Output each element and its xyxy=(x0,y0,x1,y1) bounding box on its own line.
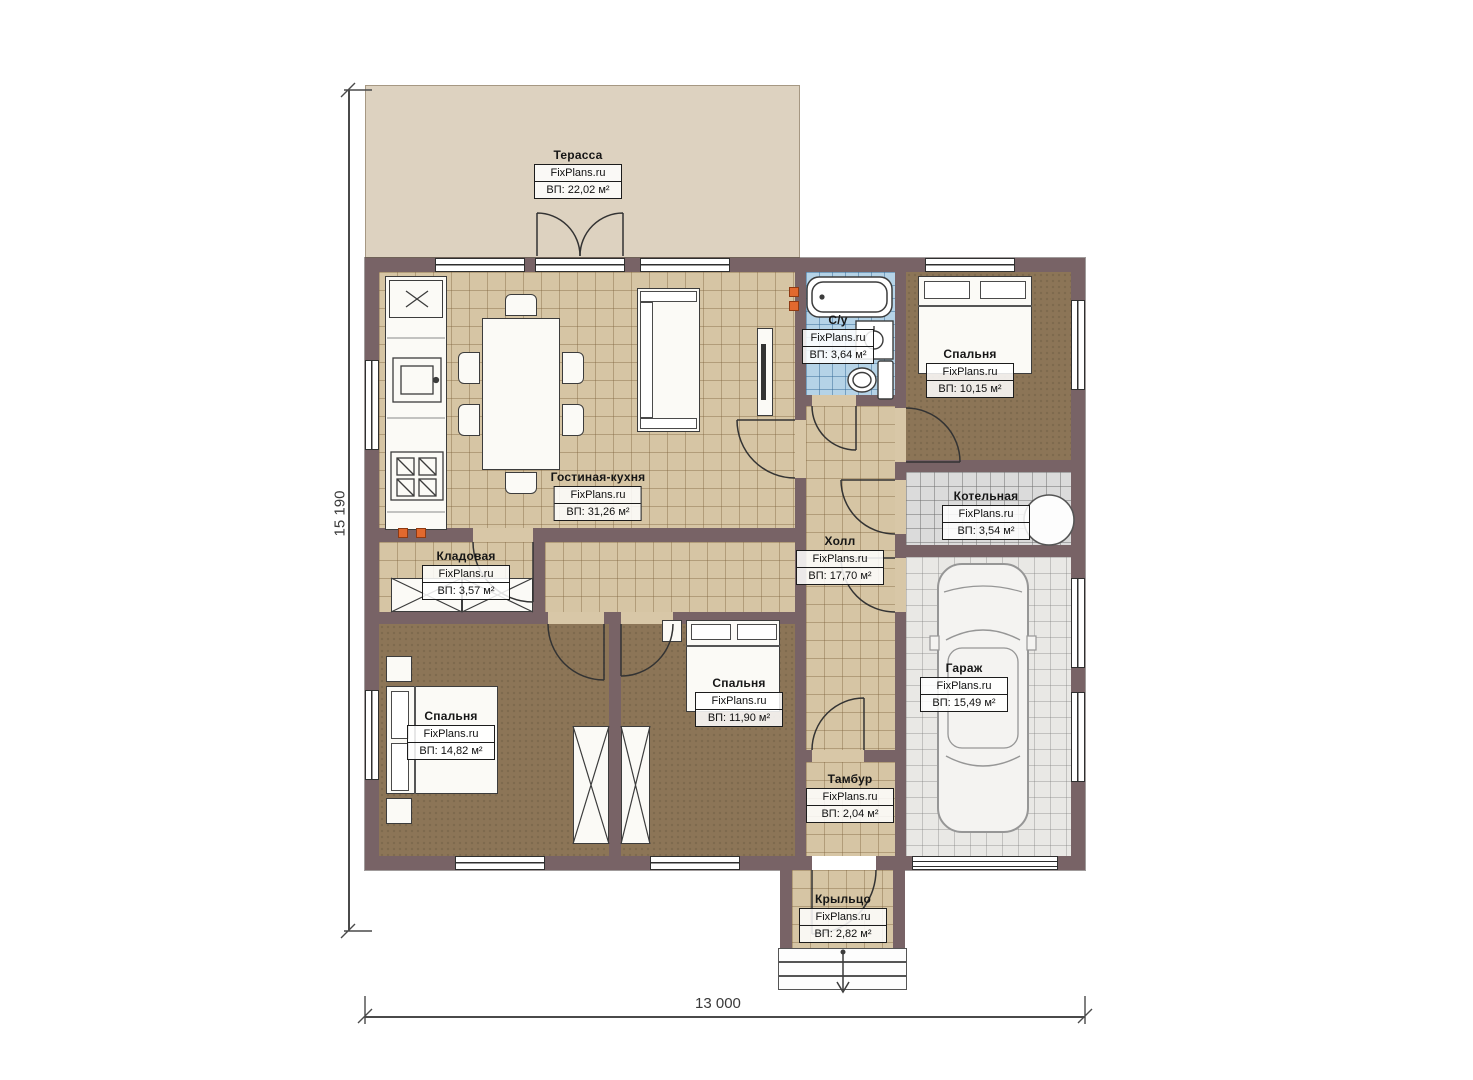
door-gap-boiler xyxy=(895,480,906,534)
vent-shaft xyxy=(398,528,408,538)
dimension-width-label: 13 000 xyxy=(695,995,741,1012)
room-label-storage: Кладовая FixPlans.ruВП: 3,57 м² xyxy=(422,549,510,600)
door-gap-garage xyxy=(895,558,906,612)
dimension-line-bottom xyxy=(365,1016,1085,1018)
room-label-vestibule: Тамбур FixPlans.ruВП: 2,04 м² xyxy=(806,772,894,823)
window-left-living xyxy=(365,360,379,450)
wardrobe xyxy=(621,726,650,844)
window-right-garage-2 xyxy=(1071,692,1085,782)
sofa-back xyxy=(640,302,653,418)
watermark: FixPlans.ru xyxy=(943,506,1029,522)
room-name: Холл xyxy=(796,534,884,548)
room-area: ВП: 2,04 м² xyxy=(807,805,893,822)
hall-band-floor xyxy=(545,542,795,612)
window-right-garage-1 xyxy=(1071,578,1085,668)
nightstand xyxy=(662,620,682,642)
room-label-bathroom: С/у FixPlans.ruВП: 3,64 м² xyxy=(802,313,874,364)
window-top-kitchen xyxy=(435,258,525,272)
room-area: ВП: 22,02 м² xyxy=(535,181,621,198)
dining-table xyxy=(482,318,560,470)
chair xyxy=(505,472,537,494)
pillow xyxy=(924,281,970,299)
room-name: Спальня xyxy=(926,347,1014,361)
vent-shaft xyxy=(789,301,799,311)
room-area: ВП: 14,82 м² xyxy=(408,742,494,759)
door-gap-storage xyxy=(473,528,533,542)
room-area: ВП: 2,82 м² xyxy=(800,925,886,942)
watermark: FixPlans.ru xyxy=(807,789,893,805)
chair xyxy=(458,404,480,436)
porch-step xyxy=(778,962,907,976)
window-top-living xyxy=(640,258,730,272)
room-name: Терасса xyxy=(534,148,622,162)
room-name: Спальня xyxy=(407,709,495,723)
room-area: ВП: 15,49 м² xyxy=(921,694,1007,711)
room-name: Гараж xyxy=(920,661,1008,675)
window-bottom-bedroom-middle xyxy=(650,856,740,870)
dimension-height-label: 15 190 xyxy=(332,484,349,544)
terrace-door xyxy=(535,258,625,272)
room-name: Котельная xyxy=(942,489,1030,503)
room-label-boiler-room: Котельная FixPlans.ruВП: 3,54 м² xyxy=(942,489,1030,540)
room-area: ВП: 10,15 м² xyxy=(927,380,1013,397)
pillow xyxy=(691,624,731,640)
room-area: ВП: 11,90 м² xyxy=(696,709,782,726)
door-gap-bathroom xyxy=(812,395,856,406)
tv xyxy=(761,344,766,400)
pillow xyxy=(980,281,1026,299)
door-gap-bedroom-bl xyxy=(548,612,604,624)
window-top-bedroom xyxy=(925,258,1015,272)
watermark: FixPlans.ru xyxy=(535,165,621,181)
room-area: ВП: 17,70 м² xyxy=(797,567,883,584)
room-name: Спальня xyxy=(695,676,783,690)
room-area: ВП: 3,54 м² xyxy=(943,522,1029,539)
watermark: FixPlans.ru xyxy=(408,726,494,742)
porch-wall-right xyxy=(893,870,905,950)
watermark: FixPlans.ru xyxy=(927,364,1013,380)
room-name: Гостиная-кухня xyxy=(551,470,646,484)
watermark: FixPlans.ru xyxy=(696,693,782,709)
room-area: ВП: 3,64 м² xyxy=(803,346,873,363)
room-name: С/у xyxy=(802,313,874,327)
room-label-bedroom-top-right: Спальня FixPlans.ruВП: 10,15 м² xyxy=(926,347,1014,398)
room-label-hall: Холл FixPlans.ruВП: 17,70 м² xyxy=(796,534,884,585)
nightstand xyxy=(386,656,412,682)
watermark: FixPlans.ru xyxy=(555,487,641,503)
window-bottom-bedroom-left xyxy=(455,856,545,870)
chair xyxy=(458,352,480,384)
garage-gate xyxy=(912,856,1058,870)
window-right-bedroom xyxy=(1071,300,1085,390)
room-name: Кладовая xyxy=(422,549,510,563)
door-gap-bedroom-tr xyxy=(895,408,906,462)
nightstand xyxy=(386,798,412,824)
watermark: FixPlans.ru xyxy=(423,566,509,582)
vent-shaft xyxy=(789,287,799,297)
room-label-living-kitchen: Гостиная-кухня FixPlans.ruВП: 31,26 м² xyxy=(551,470,646,521)
room-name: Тамбур xyxy=(806,772,894,786)
room-label-terrace: Терасса FixPlans.ruВП: 22,02 м² xyxy=(534,148,622,199)
window-left-bedroom xyxy=(365,690,379,780)
blanket-line xyxy=(686,645,780,647)
sofa-armrest xyxy=(640,291,697,302)
watermark: FixPlans.ru xyxy=(803,330,873,346)
chair xyxy=(505,294,537,316)
floor-plan: 15 190 13 000 xyxy=(0,0,1473,1080)
porch-step xyxy=(778,948,907,962)
room-label-bedroom-bottom-left: Спальня FixPlans.ruВП: 14,82 м² xyxy=(407,709,495,760)
vestibule-entry-door xyxy=(812,856,876,870)
vent-shaft xyxy=(416,528,426,538)
watermark: FixPlans.ru xyxy=(800,909,886,925)
room-area: ВП: 31,26 м² xyxy=(555,503,641,520)
porch-step xyxy=(778,976,907,990)
room-name: Крыльцо xyxy=(799,892,887,906)
room-label-garage: Гараж FixPlans.ruВП: 15,49 м² xyxy=(920,661,1008,712)
pillow xyxy=(737,624,777,640)
watermark: FixPlans.ru xyxy=(921,678,1007,694)
chair xyxy=(562,352,584,384)
porch-wall-left xyxy=(780,870,792,950)
blanket-line xyxy=(918,305,1032,307)
chair xyxy=(562,404,584,436)
fridge xyxy=(389,280,443,318)
wardrobe xyxy=(573,726,609,844)
door-gap-vestibule xyxy=(812,750,864,762)
door-gap-living-hall xyxy=(795,420,806,478)
room-label-bedroom-middle: Спальня FixPlans.ruВП: 11,90 м² xyxy=(695,676,783,727)
room-label-porch: Крыльцо FixPlans.ruВП: 2,82 м² xyxy=(799,892,887,943)
room-area: ВП: 3,57 м² xyxy=(423,582,509,599)
watermark: FixPlans.ru xyxy=(797,551,883,567)
sofa-armrest xyxy=(640,418,697,429)
